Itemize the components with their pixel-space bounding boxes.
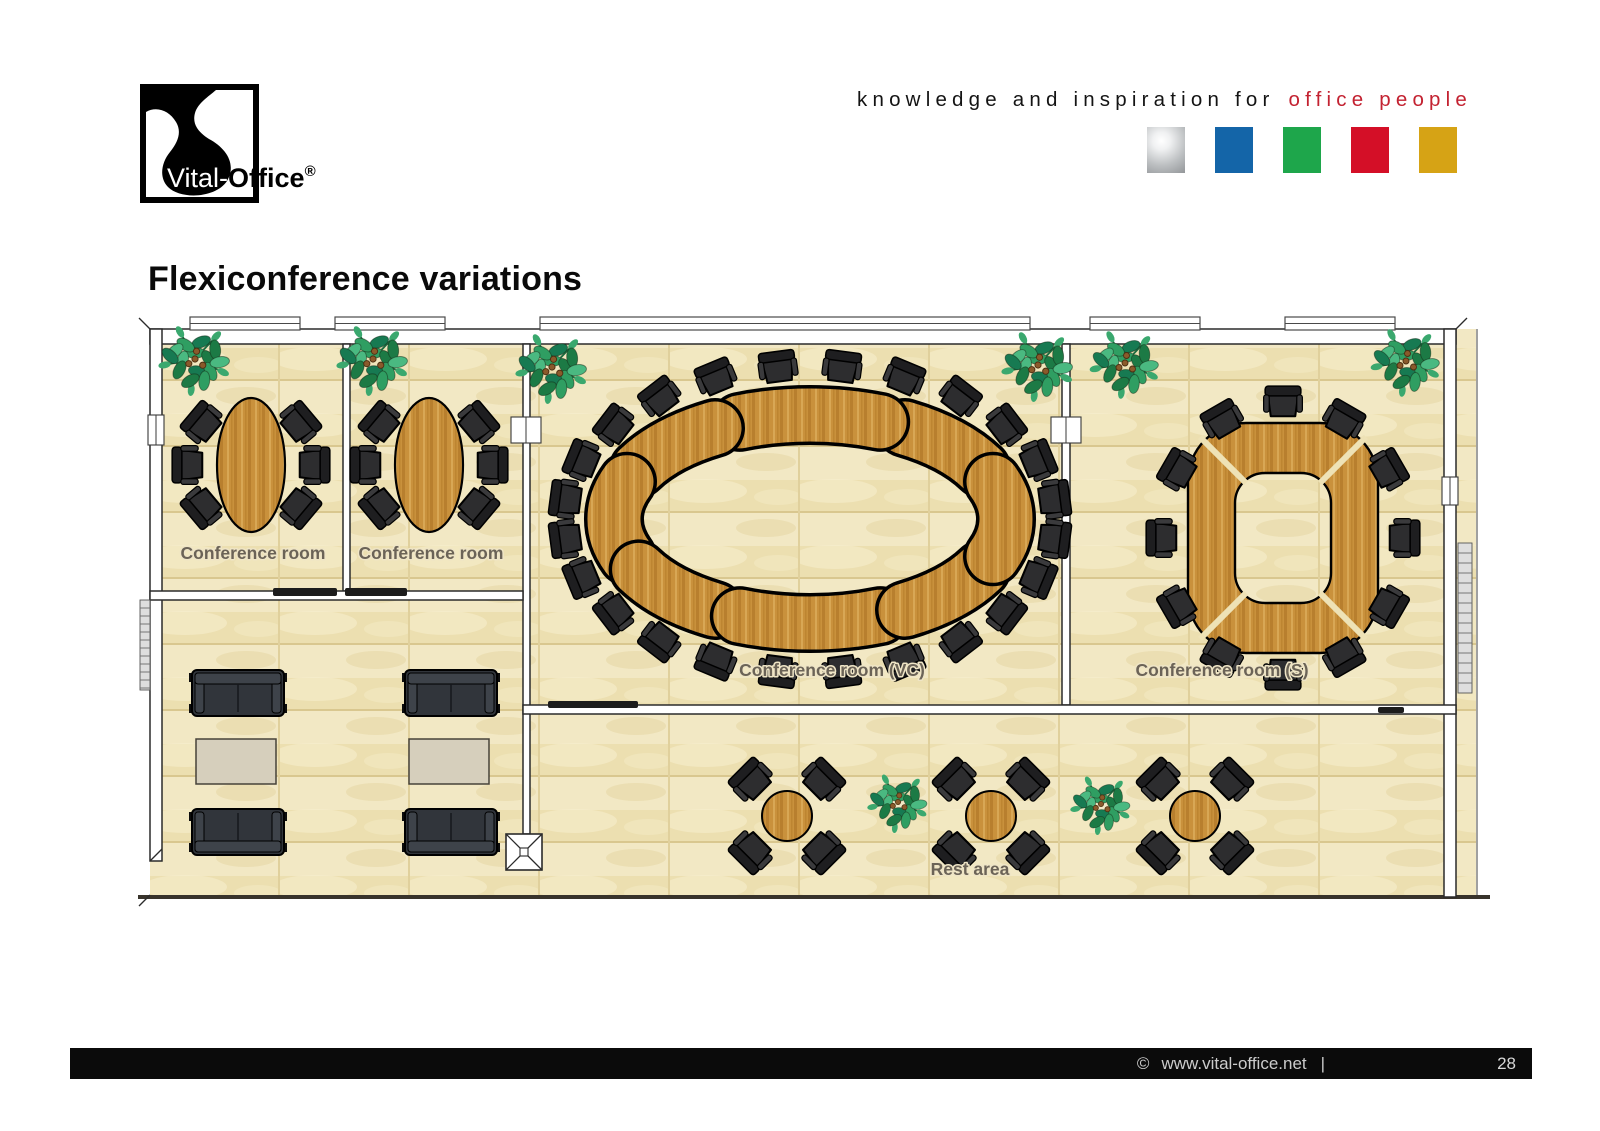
plant-pot [895, 799, 900, 804]
radiator [140, 600, 150, 690]
plant-pot [186, 361, 192, 367]
palette-swatch-gold [1419, 127, 1457, 173]
sliding-door [345, 588, 407, 596]
plant-pot [1098, 801, 1103, 806]
chair-armrest [304, 479, 321, 485]
plant-pot [364, 361, 370, 367]
brochure-page: Vital-Office® knowledge and inspiration … [0, 0, 1600, 1131]
plant-pot [902, 805, 907, 810]
plant-pot [1397, 363, 1403, 369]
tagline-red-text: office people [1289, 88, 1472, 112]
wall [1444, 329, 1456, 897]
sofa-backrest [408, 673, 494, 684]
logo-graphic: Vital-Office® [140, 84, 410, 212]
page-title: Flexiconference variations [148, 260, 582, 299]
chair-icon [350, 446, 380, 485]
palette-swatch-green [1283, 127, 1321, 173]
plant-pot [1035, 362, 1041, 368]
chair-armrest [1394, 519, 1411, 525]
chair-backrest [1265, 680, 1301, 690]
plant-pot [1029, 367, 1035, 373]
sliding-door [548, 701, 638, 708]
chair-armrest [1155, 552, 1172, 558]
chair-backrest [320, 447, 330, 483]
chair-seat [300, 450, 322, 481]
coffee-table [409, 739, 489, 784]
footer-website: www.vital-office.net [1161, 1054, 1306, 1074]
sofa-icon [189, 670, 287, 716]
plant-pot [1093, 805, 1098, 810]
chair-armrest [181, 479, 198, 485]
wall-bevel-line [139, 318, 150, 329]
plant-pot [370, 356, 376, 362]
plant-pot [371, 348, 377, 354]
chair-seat [1154, 523, 1176, 554]
footer-bar: © www.vital-office.net | 28 [70, 1048, 1532, 1079]
logo-wordmark: Vital-Office® [167, 163, 316, 193]
chair-seat [180, 450, 202, 481]
sofa-icon [402, 809, 500, 855]
table-ring-segment [740, 415, 880, 422]
sofa-icon [402, 670, 500, 716]
room-label-rest-area: Rest area [931, 859, 1010, 879]
plant-pot [1105, 807, 1110, 812]
chair-backrest [1265, 386, 1301, 396]
room-label-conference-vc: Conference room (VC) [739, 660, 925, 680]
chair-armrest [359, 479, 376, 485]
chair-armrest [304, 446, 321, 452]
chair-seat [1390, 523, 1412, 554]
chair-icon [172, 446, 202, 485]
tagline: knowledge and inspiration for office peo… [857, 88, 1472, 112]
chair-icon [548, 478, 583, 520]
column-core [520, 848, 528, 856]
footer-separator: | [1321, 1054, 1325, 1074]
plant-pot [890, 803, 895, 808]
wall [343, 344, 350, 591]
color-palette [1147, 127, 1457, 173]
chair-icon [1264, 386, 1303, 416]
tagline-black-text: knowledge and inspiration for [857, 88, 1274, 112]
plant-pot [1100, 795, 1105, 800]
chair-backrest [1146, 520, 1156, 556]
table-ring-segment [740, 616, 880, 623]
table-square-ring-hole [1235, 473, 1331, 603]
plant-pot [1130, 366, 1136, 372]
chair-backrest [172, 447, 182, 483]
page-number: 28 [1497, 1054, 1516, 1074]
chair-icon [478, 446, 508, 485]
chair-armrest [359, 446, 376, 452]
stairs [1458, 543, 1472, 693]
wall [150, 329, 1456, 344]
chair-backrest [1410, 520, 1420, 556]
plant-pot [378, 362, 384, 368]
chair-armrest [1155, 519, 1172, 525]
chair-icon [548, 518, 583, 560]
plant-pot [897, 793, 902, 798]
chair-icon [1037, 478, 1072, 520]
plant-pot [1036, 354, 1042, 360]
chair-icon [1146, 519, 1176, 558]
coffee-table [196, 739, 276, 784]
plant-pot [1411, 364, 1417, 370]
floorplan-svg: Conference roomConference roomConference… [150, 315, 1490, 915]
sliding-door [1378, 707, 1404, 713]
chair-icon [757, 349, 799, 384]
chair-backrest [498, 447, 508, 483]
plant-pot [549, 364, 555, 370]
logo-text-office: Office [228, 163, 305, 193]
plant-pot [1405, 351, 1411, 357]
table-round [762, 791, 812, 841]
chair-seat [478, 450, 500, 481]
plant-pot [543, 369, 549, 375]
plant-pot [550, 356, 556, 362]
table-round [966, 791, 1016, 841]
chair-armrest [482, 446, 499, 452]
table-ring-segment [993, 482, 1006, 557]
logo-registered-mark: ® [305, 163, 316, 180]
chair-seat [1268, 394, 1299, 416]
table-oval [217, 398, 285, 532]
sliding-door [273, 588, 337, 596]
wall-bevel-line [1456, 318, 1467, 329]
floor-bottom-line [138, 895, 1490, 899]
chair-icon [300, 446, 330, 485]
chair-seat [358, 450, 380, 481]
palette-swatch-silver [1147, 127, 1185, 173]
plant-pot [192, 356, 198, 362]
chair-icon [821, 349, 863, 384]
chair-armrest [482, 479, 499, 485]
sofa-backrest [408, 841, 494, 852]
palette-swatch-blue [1215, 127, 1253, 173]
chair-icon [1037, 518, 1072, 560]
sofa-backrest [195, 841, 281, 852]
sofa-icon [189, 809, 287, 855]
plant-pot [1124, 353, 1130, 359]
plant-pot [1122, 360, 1128, 366]
logo-text-vital: Vital- [167, 163, 228, 193]
plant-pot [557, 370, 563, 376]
chair-armrest [1264, 395, 1270, 412]
room-label-conference-2: Conference room [359, 543, 504, 563]
plant-pot [1403, 358, 1409, 364]
room-label-conference-s: Conference room (S) [1135, 660, 1308, 680]
plant-pot [1116, 365, 1122, 371]
wall [523, 705, 1456, 714]
chair-backrest [350, 447, 360, 483]
chair-armrest [181, 446, 198, 452]
vital-office-logo: Vital-Office® [140, 84, 410, 217]
plant-pot [1043, 368, 1049, 374]
table-oval [395, 398, 463, 532]
chair-icon [1390, 519, 1420, 558]
sofa-backrest [195, 673, 281, 684]
chair-armrest [1297, 395, 1303, 412]
plant-pot [200, 362, 206, 368]
room-label-conference-1: Conference room [181, 543, 326, 563]
copyright-symbol: © [1137, 1054, 1150, 1074]
plant-pot [193, 348, 199, 354]
chair-armrest [1394, 552, 1411, 558]
palette-swatch-red [1351, 127, 1389, 173]
outer-edge-line [1476, 329, 1478, 897]
table-round [1170, 791, 1220, 841]
